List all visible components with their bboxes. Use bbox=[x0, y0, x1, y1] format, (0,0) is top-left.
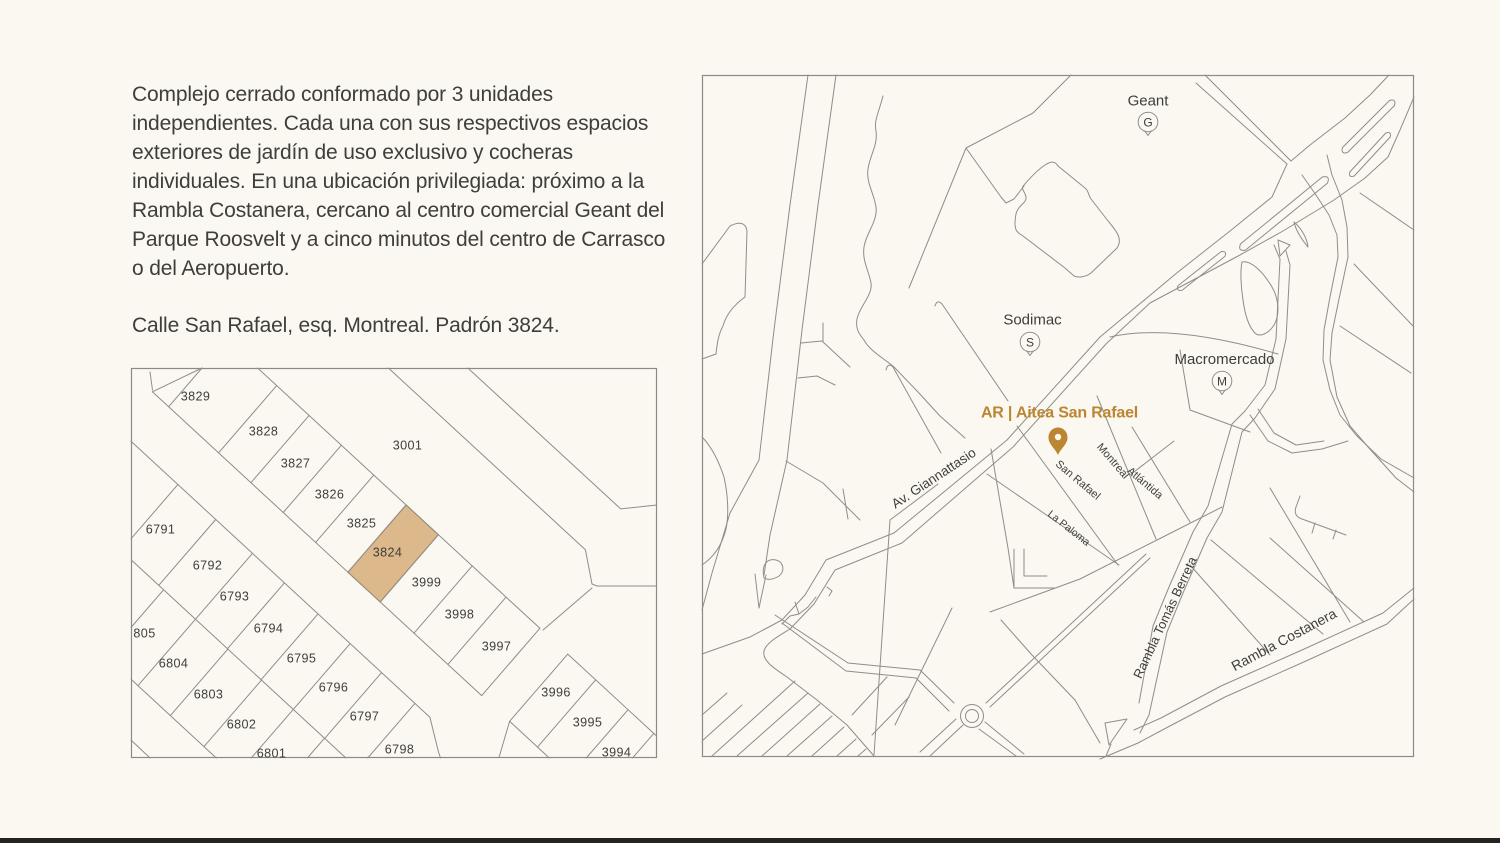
svg-text:805: 805 bbox=[133, 627, 155, 641]
svg-text:3997: 3997 bbox=[481, 640, 511, 654]
svg-text:6804: 6804 bbox=[158, 657, 188, 671]
svg-text:Montreal: Montreal bbox=[1094, 441, 1131, 481]
svg-text:Macromercado: Macromercado bbox=[1174, 351, 1274, 368]
svg-text:La Paloma: La Paloma bbox=[1045, 508, 1092, 548]
svg-text:6792: 6792 bbox=[192, 559, 222, 573]
svg-text:6801: 6801 bbox=[256, 747, 286, 761]
svg-text:3829: 3829 bbox=[180, 390, 210, 404]
svg-text:6795: 6795 bbox=[286, 652, 316, 666]
svg-text:3828: 3828 bbox=[248, 425, 278, 439]
svg-text:3995: 3995 bbox=[572, 716, 602, 730]
svg-text:Geant: Geant bbox=[1128, 93, 1170, 110]
svg-text:Av. Giannattasio: Av. Giannattasio bbox=[889, 445, 979, 511]
svg-text:6794: 6794 bbox=[253, 622, 283, 636]
svg-text:Sodimac: Sodimac bbox=[1003, 312, 1062, 329]
svg-text:6791: 6791 bbox=[145, 523, 175, 537]
svg-text:6802: 6802 bbox=[226, 718, 256, 732]
svg-text:San Rafael: San Rafael bbox=[1053, 458, 1102, 502]
svg-text:3996: 3996 bbox=[541, 686, 571, 700]
svg-text:3999: 3999 bbox=[411, 576, 441, 590]
svg-text:Rambla Costanera: Rambla Costanera bbox=[1228, 605, 1339, 674]
svg-text:6798: 6798 bbox=[384, 743, 414, 757]
svg-text:Rambla Tomás Berreta: Rambla Tomás Berreta bbox=[1130, 554, 1200, 681]
svg-text:3994: 3994 bbox=[601, 746, 631, 760]
svg-text:3826: 3826 bbox=[314, 488, 344, 502]
svg-text:G: G bbox=[1143, 116, 1152, 130]
svg-text:3825: 3825 bbox=[346, 517, 376, 531]
svg-text:Atlántida: Atlántida bbox=[1124, 465, 1165, 502]
svg-text:AR | Aitea San Rafael: AR | Aitea San Rafael bbox=[981, 405, 1138, 422]
svg-text:M: M bbox=[1217, 375, 1227, 389]
svg-text:3824: 3824 bbox=[372, 546, 402, 560]
svg-text:6797: 6797 bbox=[349, 710, 379, 724]
svg-text:6793: 6793 bbox=[219, 590, 249, 604]
svg-text:S: S bbox=[1026, 336, 1034, 350]
svg-text:6796: 6796 bbox=[318, 681, 348, 695]
svg-text:3998: 3998 bbox=[444, 608, 474, 622]
svg-text:3827: 3827 bbox=[280, 457, 310, 471]
svg-text:6803: 6803 bbox=[193, 688, 223, 702]
svg-text:3001: 3001 bbox=[392, 439, 422, 453]
